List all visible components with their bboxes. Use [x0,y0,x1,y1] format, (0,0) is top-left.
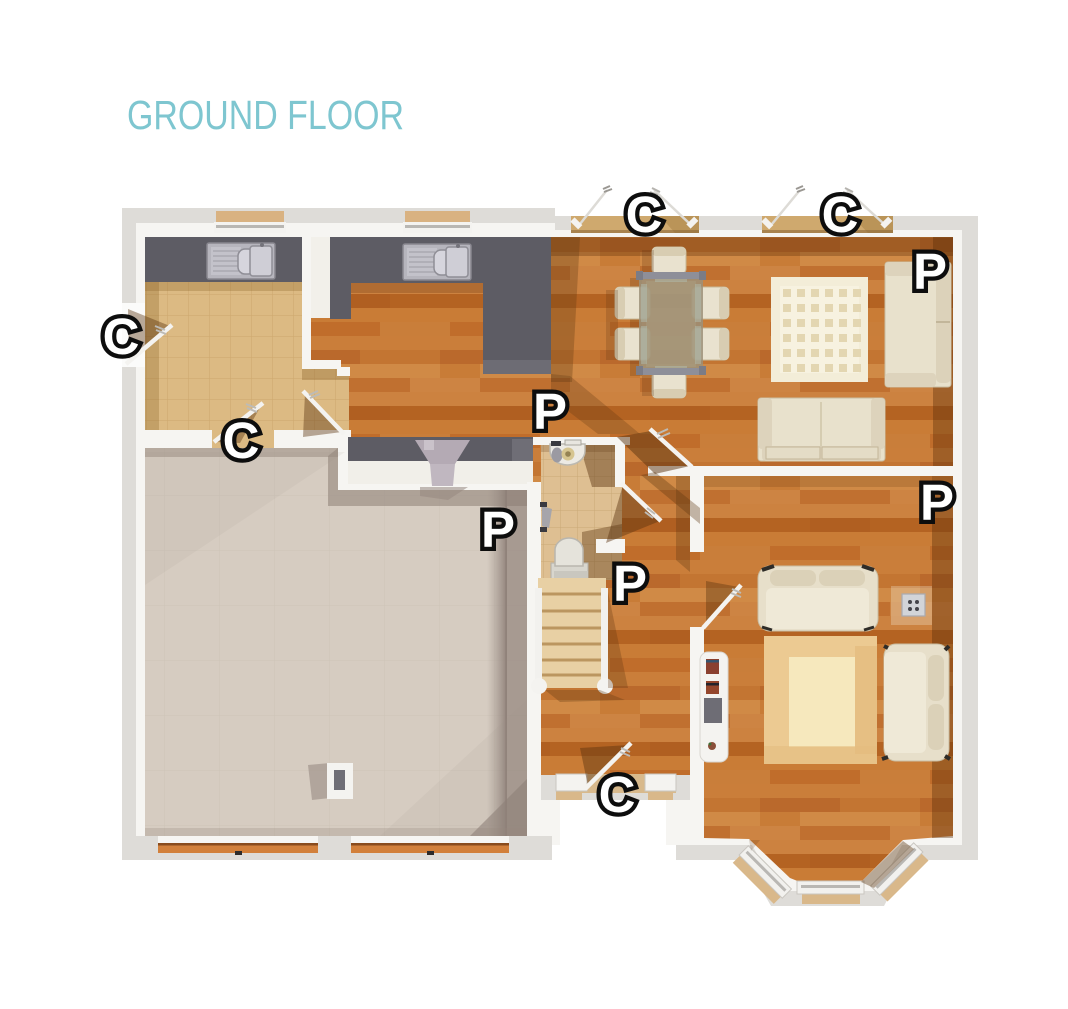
svg-text:C: C [626,186,663,243]
svg-text:C: C [223,412,260,469]
svg-text:C: C [103,308,140,365]
svg-text:P: P [913,243,947,300]
svg-text:P: P [920,474,954,531]
svg-text:P: P [613,555,647,612]
svg-text:P: P [533,383,567,440]
svg-text:GROUND FLOOR: GROUND FLOOR [127,92,404,138]
svg-text:C: C [599,766,636,823]
svg-text:C: C [822,186,859,243]
svg-text:P: P [481,501,515,558]
